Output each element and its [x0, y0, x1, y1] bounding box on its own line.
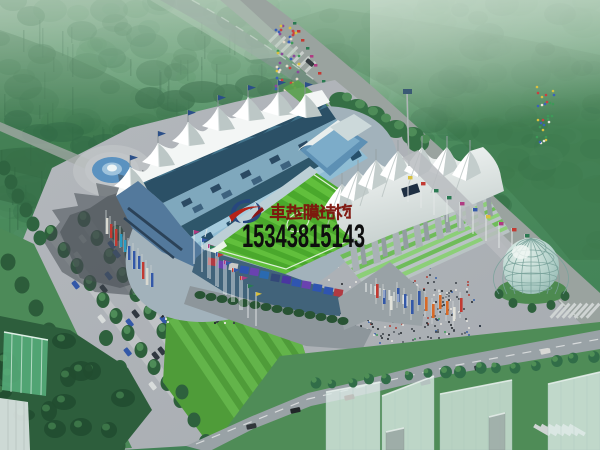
svg-text:15343815143: 15343815143 — [242, 218, 365, 254]
